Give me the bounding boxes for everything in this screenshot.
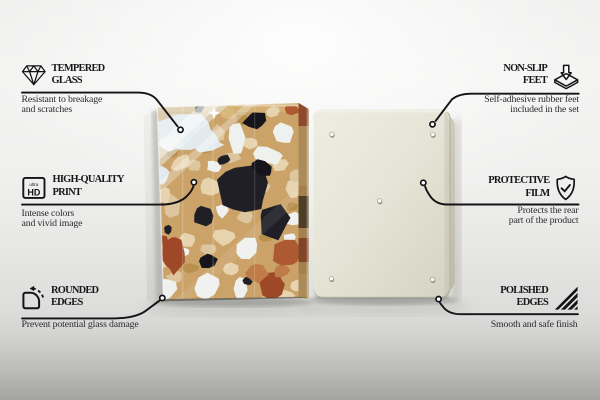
svg-text:HD: HD [27,187,40,197]
svg-text:ultra: ultra [29,182,38,187]
